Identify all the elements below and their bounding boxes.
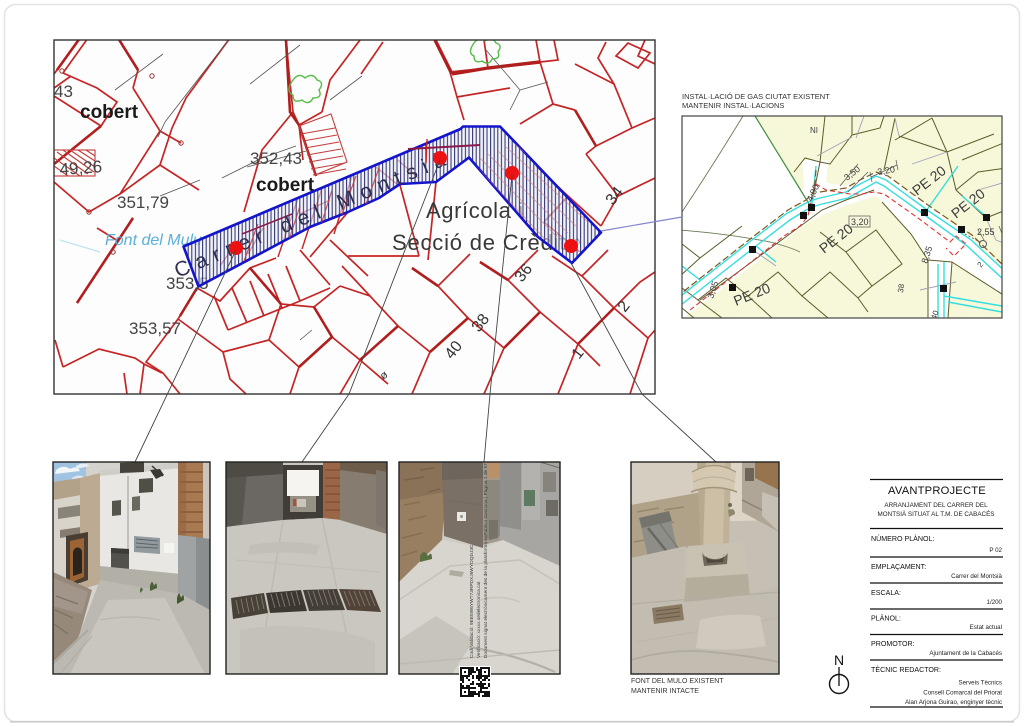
svg-text:2,55: 2,55 [977,227,995,237]
svg-text:cobert: cobert [80,102,139,123]
svg-text:Codi Validació: 9EE5W6YWT73RPD: Codi Validació: 9EE5W6YWT73RPDXJ6WYOQDJ3… [469,544,475,658]
svg-text:N: N [834,652,844,668]
svg-text:PLÀNOL:: PLÀNOL: [871,614,901,623]
svg-text:Serveis Tècnics: Serveis Tècnics [958,680,1002,687]
svg-text:TÈCNIC REDACTOR:: TÈCNIC REDACTOR: [871,665,941,674]
svg-text:351,79: 351,79 [117,193,169,212]
svg-text:MONTSIÀ SITUAT AL T.M. DE CABA: MONTSIÀ SITUAT AL T.M. DE CABACÉS [878,509,995,518]
svg-text:Alan Arjona Guirao, enginyer t: Alan Arjona Guirao, enginyer tècnic [905,699,1002,706]
svg-text:38: 38 [896,283,906,294]
svg-text:Estat actual: Estat actual [970,624,1002,631]
svg-text:353,57: 353,57 [129,319,181,338]
svg-text:MANTENIR INSTAL·LACIONS: MANTENIR INSTAL·LACIONS [682,101,784,110]
svg-text:PROMOTOR:: PROMOTOR: [871,640,915,648]
svg-text:43: 43 [54,82,73,101]
svg-text:AVANTPROJECTE: AVANTPROJECTE [888,485,986,497]
svg-text:ARRANJAMENT DEL CARRER DEL: ARRANJAMENT DEL CARRER DEL [884,502,988,509]
svg-text:Consell Comarcal del Priorat: Consell Comarcal del Priorat [923,690,1002,697]
svg-text:Verificació: xxxxx.sedelectron: Verificació: xxxxx.sedelectronica.cat [476,581,482,658]
svg-text:ESCALA:: ESCALA: [871,589,901,597]
svg-text:352,43: 352,43 [250,149,302,168]
svg-text:1/200: 1/200 [987,599,1003,606]
svg-text:3,20: 3,20 [851,217,869,227]
svg-text:NI: NI [810,126,818,135]
svg-text:49,26: 49,26 [59,157,103,179]
svg-text:FONT DEL MULO EXISTENT: FONT DEL MULO EXISTENT [631,678,724,685]
svg-text:MANTENIR INTACTE: MANTENIR INTACTE [631,688,699,695]
svg-text:Carrer del Montsià: Carrer del Montsià [951,573,1002,580]
svg-text:Document signat electrònicamen: Document signat electrònicament des de l… [483,463,489,658]
svg-text:P 02: P 02 [989,547,1002,554]
svg-text:INSTAL·LACIÓ DE GAS CIUTAT EXI: INSTAL·LACIÓ DE GAS CIUTAT EXISTENT [682,92,830,101]
svg-text:cobert: cobert [256,175,315,196]
svg-text:Ajuntament de la Cabacés: Ajuntament de la Cabacés [929,650,1002,657]
svg-text:EMPLAÇAMENT:: EMPLAÇAMENT: [871,563,926,571]
svg-text:NÚMERO PLÀNOL:: NÚMERO PLÀNOL: [871,534,934,543]
